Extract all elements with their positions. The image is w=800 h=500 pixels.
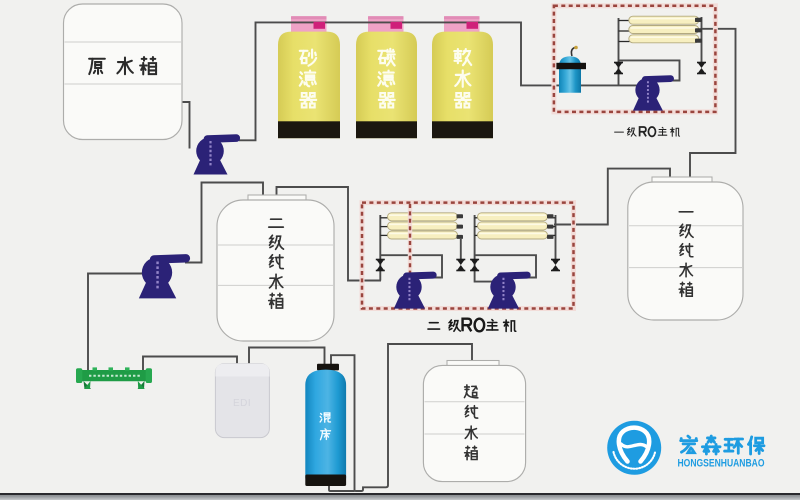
svg-text:EDI: EDI bbox=[233, 398, 251, 409]
svg-text:HONGSENHUANBAO: HONGSENHUANBAO bbox=[678, 458, 765, 470]
